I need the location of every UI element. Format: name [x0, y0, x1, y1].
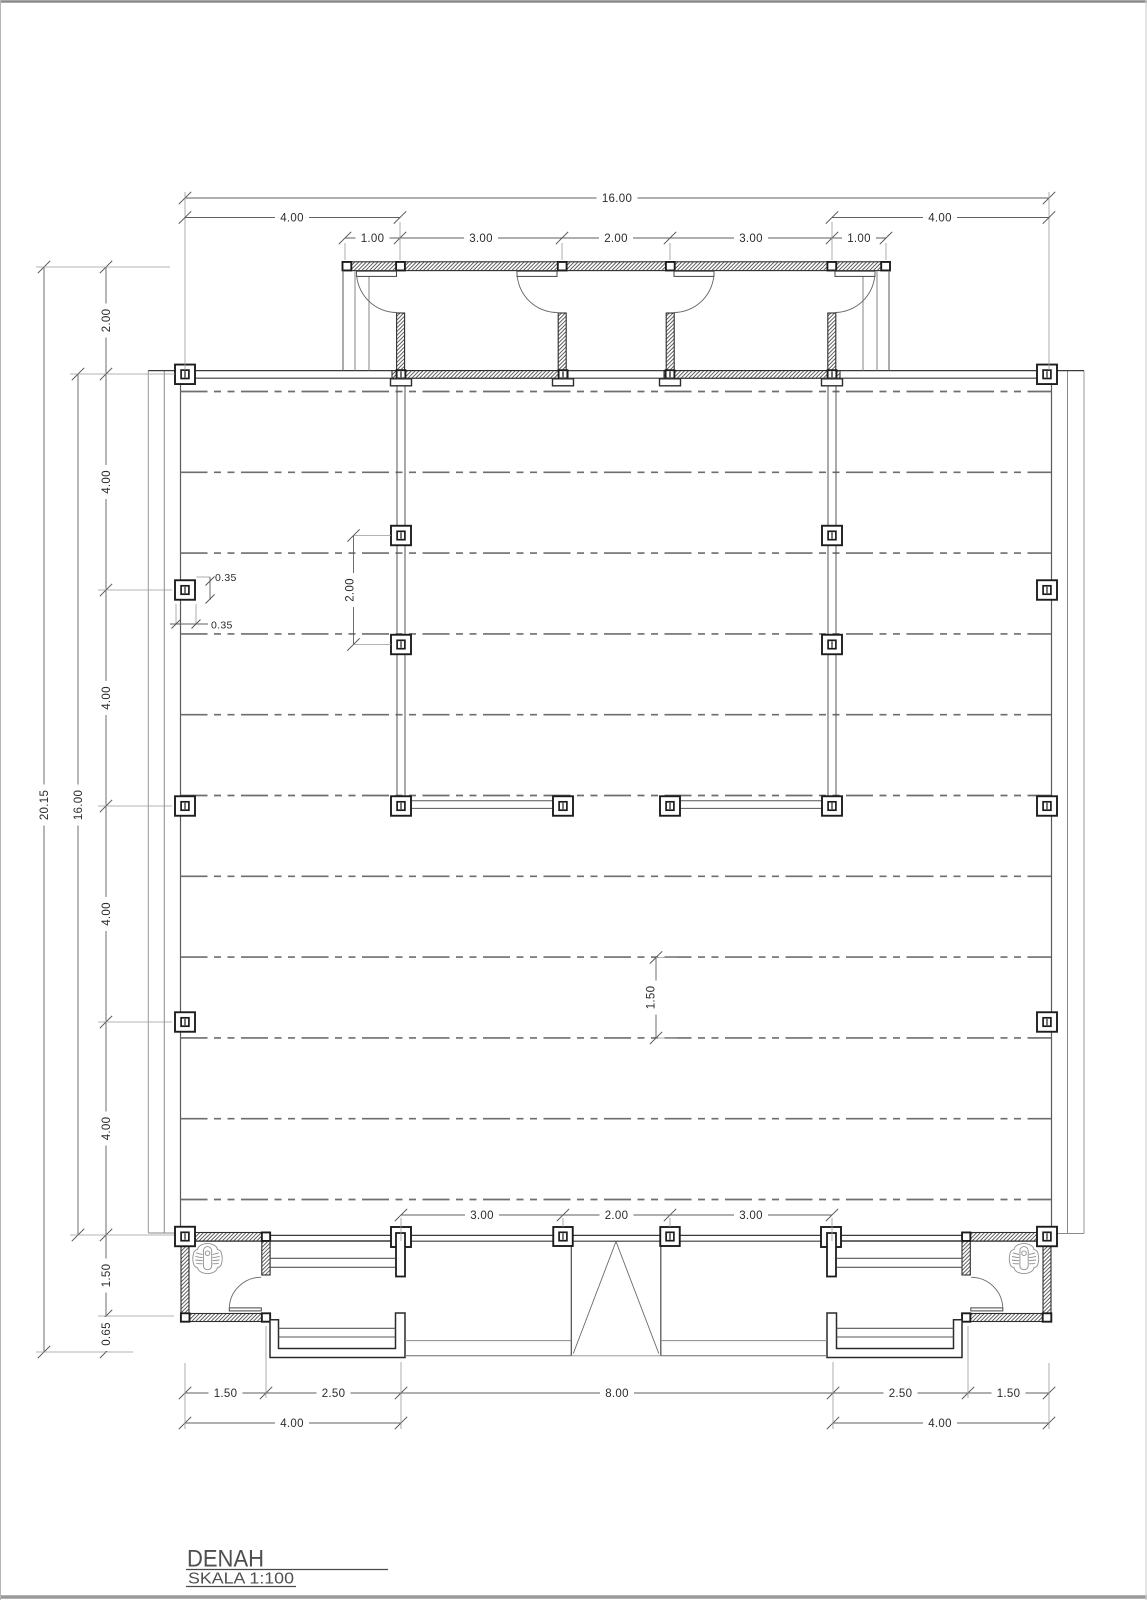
- svg-text:SKALA 1:100: SKALA 1:100: [188, 1571, 294, 1588]
- svg-text:3.00: 3.00: [470, 1210, 494, 1222]
- svg-text:4.00: 4.00: [101, 470, 113, 494]
- svg-text:16.00: 16.00: [602, 193, 632, 205]
- svg-text:3.00: 3.00: [739, 1210, 763, 1222]
- svg-text:0.65: 0.65: [101, 1322, 113, 1346]
- svg-text:1.50: 1.50: [101, 1264, 113, 1288]
- svg-text:2.00: 2.00: [605, 1210, 629, 1222]
- svg-text:4.00: 4.00: [928, 1418, 952, 1430]
- svg-text:4.00: 4.00: [928, 213, 952, 225]
- svg-text:4.00: 4.00: [280, 213, 304, 225]
- svg-text:2.00: 2.00: [604, 233, 628, 245]
- svg-text:1.50: 1.50: [214, 1388, 238, 1400]
- svg-text:4.00: 4.00: [280, 1418, 304, 1430]
- svg-text:1.50: 1.50: [646, 986, 658, 1010]
- svg-text:0.35: 0.35: [211, 620, 233, 632]
- svg-text:1.00: 1.00: [361, 233, 385, 245]
- svg-text:1.50: 1.50: [997, 1388, 1021, 1400]
- svg-text:4.00: 4.00: [101, 902, 113, 926]
- svg-text:2.00: 2.00: [101, 309, 113, 333]
- svg-text:1.00: 1.00: [847, 233, 871, 245]
- svg-text:4.00: 4.00: [101, 1117, 113, 1141]
- svg-text:8.00: 8.00: [605, 1388, 629, 1400]
- svg-text:2.50: 2.50: [322, 1388, 346, 1400]
- svg-text:2.50: 2.50: [889, 1388, 913, 1400]
- svg-text:20.15: 20.15: [39, 790, 51, 820]
- svg-text:DENAH: DENAH: [187, 1546, 264, 1573]
- svg-text:0.35: 0.35: [215, 572, 237, 584]
- svg-text:2.00: 2.00: [345, 578, 357, 602]
- svg-text:16.00: 16.00: [73, 790, 85, 820]
- svg-text:3.00: 3.00: [739, 233, 763, 245]
- svg-text:4.00: 4.00: [101, 686, 113, 710]
- svg-text:3.00: 3.00: [469, 233, 493, 245]
